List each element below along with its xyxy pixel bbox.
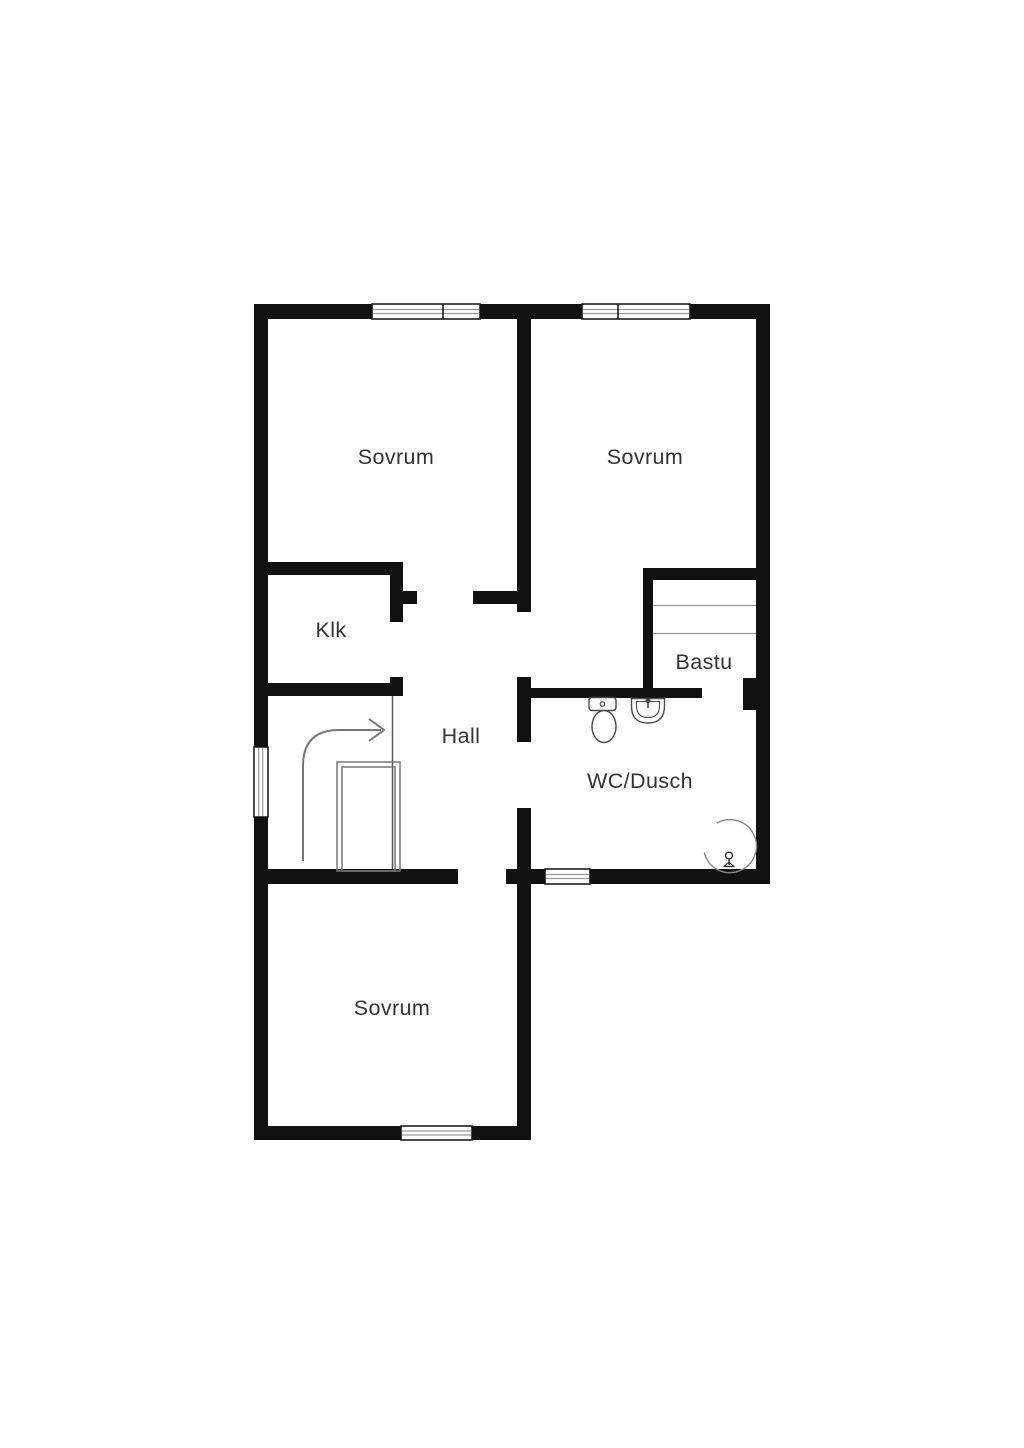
window (254, 747, 268, 817)
wall-segment (506, 869, 545, 884)
room-label-bedroom-top-right: Sovrum (607, 445, 683, 469)
window (545, 869, 590, 884)
window (372, 304, 480, 319)
floor-plan-drawing: Sovrum Sovrum Klk Hall Bastu WC/Dusch So… (0, 0, 1024, 1448)
wall-segment (590, 869, 770, 884)
washbasin-icon (632, 698, 665, 723)
wall-segment (473, 591, 517, 604)
room-label-closet: Klk (315, 618, 346, 642)
wall-segment (254, 1126, 401, 1140)
page-background (0, 0, 1024, 1448)
wall-segment (517, 318, 531, 612)
wall-segment (643, 568, 756, 580)
wall-segment (517, 808, 531, 1140)
wall-segment (743, 678, 756, 710)
room-label-bedroom-top-left: Sovrum (358, 445, 434, 469)
wall-segment (472, 1126, 531, 1140)
room-label-bathroom: WC/Dusch (587, 769, 693, 793)
wall-segment (517, 677, 531, 742)
wall-segment (254, 304, 372, 319)
floor-plan-page: Sovrum Sovrum Klk Hall Bastu WC/Dusch So… (0, 0, 1024, 1448)
wall-segment (756, 304, 770, 884)
wall-segment (254, 304, 268, 747)
window (582, 304, 690, 319)
wall-segment (254, 817, 268, 1140)
wall-segment (390, 562, 403, 622)
room-label-bedroom-bottom: Sovrum (354, 996, 430, 1020)
wall-segment (643, 568, 653, 688)
room-label-hall: Hall (442, 724, 481, 748)
wall-segment (480, 304, 582, 319)
wall-segment (531, 688, 702, 698)
wall-segment (403, 591, 417, 604)
wall-segment (254, 562, 403, 575)
room-label-sauna: Bastu (676, 650, 733, 674)
wall-segment (268, 683, 403, 696)
window (401, 1126, 472, 1140)
